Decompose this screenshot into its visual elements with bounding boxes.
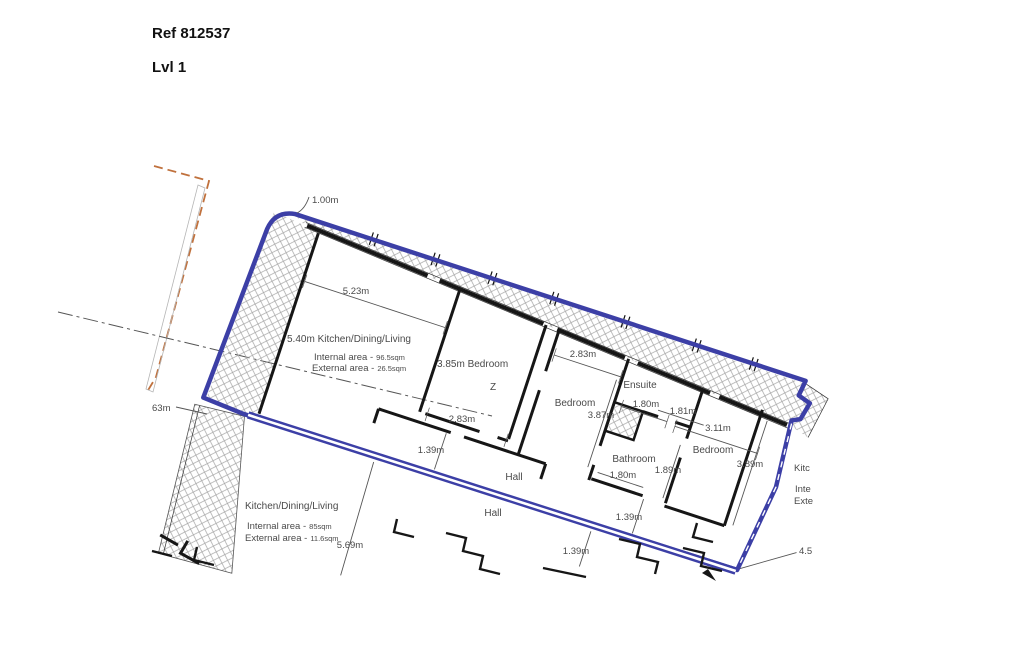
rotated-plan-group	[147, 196, 850, 647]
room-hall-lower: Hall	[484, 508, 501, 519]
leader-100m	[297, 197, 309, 213]
kitchen-lower-external-area: External area -11.6sqm	[245, 533, 339, 544]
kitchen-upper-external-area: External area -26.5sqm	[312, 363, 406, 374]
dim-hall-left: 1.39m	[418, 445, 444, 456]
room-kitchen-lower: Kitchen/Dining/Living	[245, 501, 338, 512]
dim-bedroom3-depth: 3.89m	[737, 459, 763, 470]
room-bedroom2: Bedroom	[555, 398, 596, 409]
dim-corner: 4.5	[799, 546, 812, 557]
dim-hall-lower: 1.39m	[563, 546, 589, 557]
dim-bedroom3-width: 3.11m	[705, 423, 731, 434]
dim-parapet: 1.00m	[312, 195, 338, 206]
dim-bedroom2-depth: 3.87m	[588, 410, 614, 421]
room-ensuite: Ensuite	[623, 380, 657, 391]
dim-hall-right: 1.39m	[616, 512, 642, 523]
room-hall-upper: Hall	[505, 472, 522, 483]
dim-kitchen-top: 5.23m	[343, 286, 369, 297]
label-truncated-internal: Inte	[795, 484, 811, 495]
dim-shaft-width: 1.81m	[670, 406, 696, 417]
dim-ensuite-width: 1.80m	[633, 399, 659, 410]
hatch-wedge-lower-left	[147, 400, 280, 577]
reference-title: Ref 812537	[152, 25, 230, 42]
floor-plan-canvas: Ref 812537 Lvl 1	[0, 0, 1024, 647]
label-truncated-kitchen: Kitc	[794, 463, 810, 474]
lower-floor-fragments	[152, 519, 722, 581]
survey-strip-outline	[146, 185, 205, 392]
room-bathroom: Bathroom	[612, 454, 655, 465]
kitchen-lower-internal-area: Internal area -85sqm	[247, 521, 332, 532]
room-bedroom1: 3.85m Bedroom	[437, 359, 508, 370]
kitchen-upper-internal-area: Internal area -96.5sqm	[314, 352, 405, 363]
level-title: Lvl 1	[152, 59, 186, 76]
dim-bathroom-width: 1.80m	[610, 470, 636, 481]
dim-boundary-left: 63m	[152, 403, 171, 414]
dim-bedroom1-width: 2.83m	[449, 414, 475, 425]
room-kitchen-upper: 5.40m Kitchen/Dining/Living	[287, 334, 411, 345]
dim-kitchen-lower-depth: 5.69m	[337, 540, 363, 551]
room-bedroom3: Bedroom	[693, 445, 734, 456]
floor-plan-page: Ref 812537 Lvl 1	[0, 0, 1024, 647]
site-boundary-dashed-line	[147, 166, 209, 392]
north-arrow-tick	[702, 569, 716, 581]
dim-bedroom2-width: 2.83m	[570, 349, 596, 360]
label-truncated-external: Exte	[794, 496, 813, 507]
zone-marker: Z	[490, 382, 496, 393]
dim-bathroom-depth: 1.89m	[655, 465, 681, 476]
